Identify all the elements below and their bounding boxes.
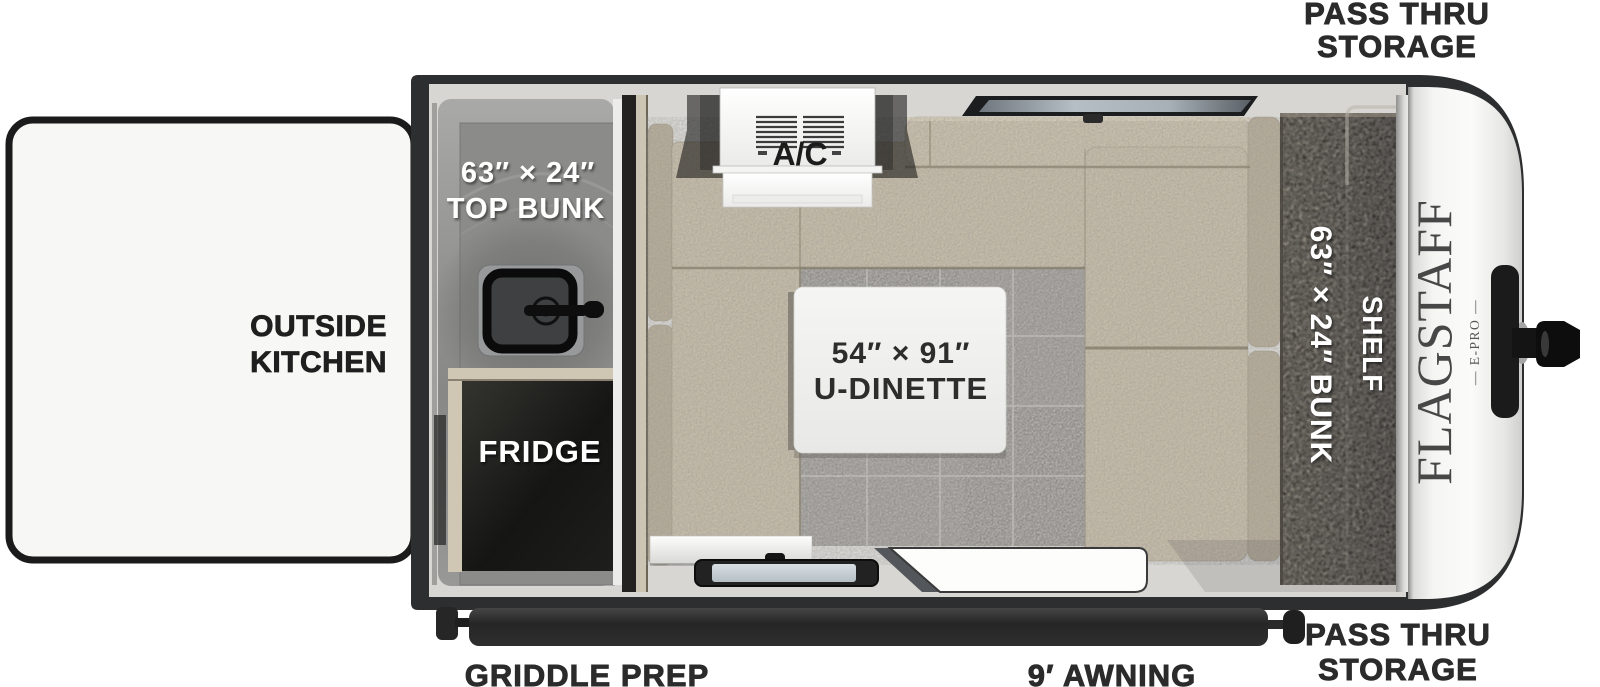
svg-text:63″ × 24″: 63″ × 24″ (461, 157, 595, 189)
svg-text:GRIDDLE PREP: GRIDDLE PREP (465, 658, 710, 687)
svg-text:TOP BUNK: TOP BUNK (447, 193, 605, 225)
svg-text:FRIDGE: FRIDGE (478, 434, 601, 469)
svg-text:63″ × 24″ BUNK: 63″ × 24″ BUNK (1304, 226, 1337, 465)
svg-text:STORAGE: STORAGE (1318, 652, 1478, 687)
svg-text:9′ AWNING: 9′ AWNING (1028, 658, 1197, 687)
svg-text:— E-PRO —: — E-PRO — (1467, 299, 1482, 386)
svg-text:PASS THRU: PASS THRU (1305, 617, 1491, 652)
svg-text:OUTSIDE: OUTSIDE (250, 310, 387, 343)
svg-text:U-DINETTE: U-DINETTE (814, 371, 988, 406)
svg-text:SHELF: SHELF (1357, 296, 1388, 393)
svg-text:PASS THRU: PASS THRU (1304, 0, 1490, 31)
svg-text:FLAGSTAFF: FLAGSTAFF (1406, 199, 1462, 485)
svg-text:STORAGE: STORAGE (1317, 29, 1477, 64)
svg-text:54″ × 91″: 54″ × 91″ (832, 337, 971, 370)
svg-text:KITCHEN: KITCHEN (250, 346, 387, 379)
